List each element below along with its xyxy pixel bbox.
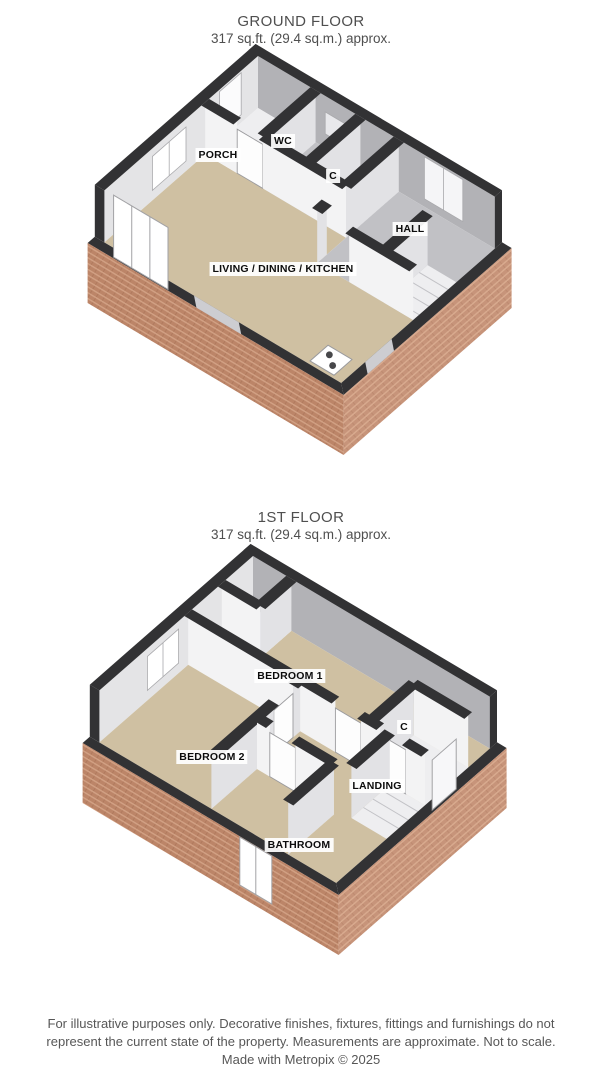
disclaimer-line-2: represent the current state of the prope… [0,1033,602,1051]
first-floor-header: 1ST FLOOR 317 sq.ft. (29.4 sq.m.) approx… [0,509,602,543]
first-floor-plan [83,544,507,955]
disclaimer-line-3: Made with Metropix © 2025 [0,1051,602,1069]
disclaimer: For illustrative purposes only. Decorati… [0,1015,602,1069]
floorplan-page: GROUND FLOOR 317 sq.ft. (29.4 sq.m.) app… [0,0,602,1079]
ground-floor-title: GROUND FLOOR [0,13,602,30]
first-floor-subtitle: 317 sq.ft. (29.4 sq.m.) approx. [0,526,602,543]
ground-floor-header: GROUND FLOOR 317 sq.ft. (29.4 sq.m.) app… [0,13,602,47]
first-floor-title: 1ST FLOOR [0,509,602,526]
ground-floor-plan [88,44,512,455]
disclaimer-line-1: For illustrative purposes only. Decorati… [0,1015,602,1033]
ground-floor-subtitle: 317 sq.ft. (29.4 sq.m.) approx. [0,30,602,47]
